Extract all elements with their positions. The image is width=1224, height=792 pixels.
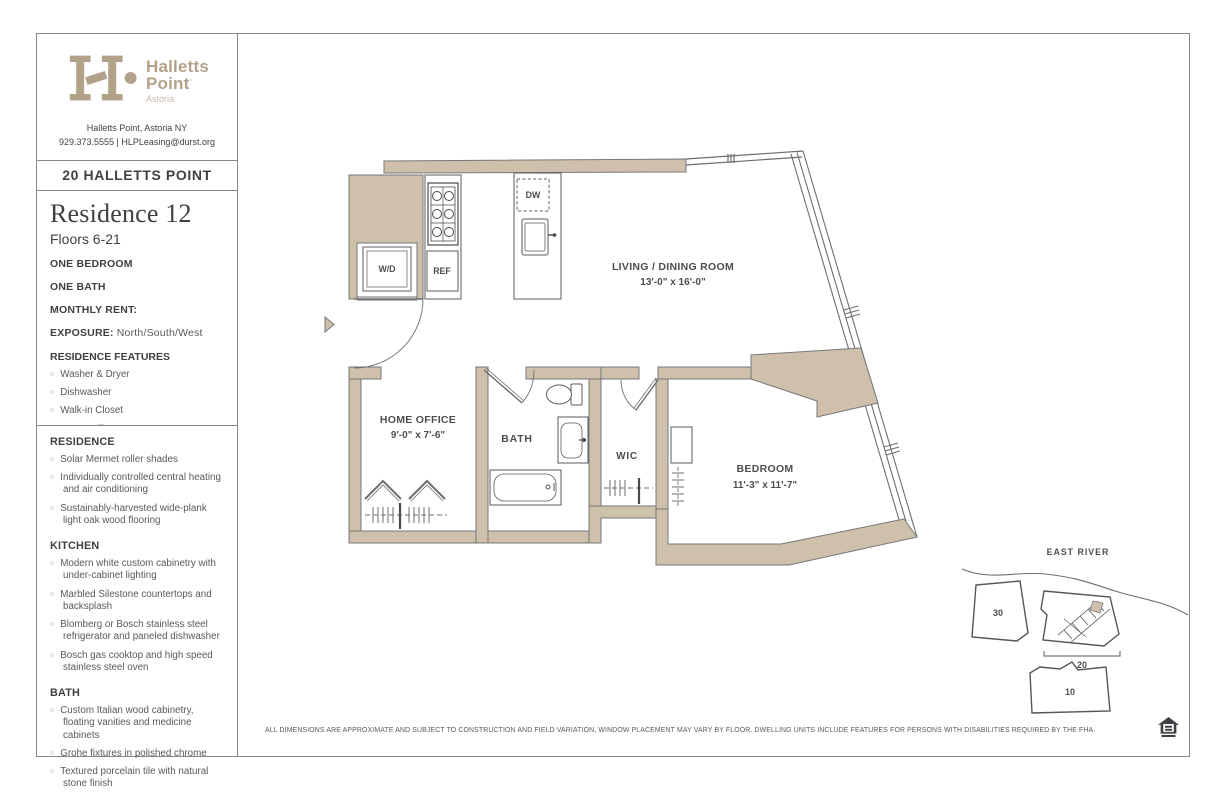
equal-housing-opportunity-icon: [1158, 717, 1179, 743]
toilet-icon: [547, 384, 583, 405]
amenities-bath-title: BATH: [50, 687, 224, 699]
residence-features-list: Washer & DryerDishwasherWalk-in ClosetHo…: [50, 369, 224, 426]
bedroom-top-wall: [658, 367, 756, 379]
brand-tagline: Astoria: [146, 95, 209, 104]
building-20-bracket: [1044, 651, 1120, 656]
label-bedroom-dims: 11'-3" x 11'-7": [733, 480, 798, 491]
amenity-item: Sustainably-harvested wide-plank light o…: [50, 503, 224, 527]
halletts-point-logo-icon: [65, 49, 137, 112]
spec-rent: MONTHLY RENT:: [50, 304, 224, 316]
top-wall: [384, 159, 686, 173]
label-living-dims: 13'-0" x 16'-0": [640, 277, 706, 288]
disclaimer-text: ALL DIMENSIONS ARE APPROXIMATE AND SUBJE…: [265, 727, 1144, 734]
building-30-label: 30: [993, 608, 1003, 618]
amenities-residence-list: Solar Mermet roller shadesIndividually c…: [50, 454, 224, 527]
spec-bedrooms: ONE BEDROOM: [50, 258, 224, 270]
spec-baths: ONE BATH: [50, 281, 224, 293]
bath-top-wall: [526, 367, 601, 379]
amenities-section: RESIDENCE Solar Mermet roller shadesIndi…: [37, 426, 237, 790]
building-20-shape: [1041, 591, 1119, 646]
east-river-label: EAST RIVER: [1047, 547, 1110, 557]
bottom-wall-west: [349, 531, 601, 543]
amenity-item: Grohe fixtures in polished chrome: [50, 748, 224, 760]
bath-left-wall: [476, 367, 488, 543]
label-home-office: HOME OFFICE: [380, 414, 456, 426]
amenity-item: Individually controlled central heating …: [50, 472, 224, 496]
amenity-item: Bosch gas cooktop and high speed stainle…: [50, 650, 224, 674]
residence-floors: Floors 6-21: [50, 231, 224, 247]
amenities-bath-list: Custom Italian wood cabinetry, floating …: [50, 705, 224, 790]
main-area: LIVING / DINING ROOM 13'-0" x 16'-0" HOM…: [238, 34, 1189, 756]
amenity-item: Modern white custom cabinetry with under…: [50, 558, 224, 582]
brand-address: Halletts Point, Astoria NY: [37, 122, 237, 136]
label-washer-dryer: W/D: [378, 264, 395, 274]
bath-right-wall: [589, 379, 601, 506]
label-bedroom: BEDROOM: [737, 463, 794, 475]
label-living-room: LIVING / DINING ROOM: [612, 261, 734, 273]
label-wic: WIC: [616, 451, 638, 462]
hall-wall-stub: [349, 367, 381, 379]
exposure-value: North/South/West: [114, 327, 203, 339]
building-title: 20 HALLETTS POINT: [37, 161, 237, 191]
floorplan: LIVING / DINING ROOM 13'-0" x 16'-0" HOM…: [321, 139, 921, 589]
left-wall-lower: [349, 367, 361, 531]
site-map: EAST RIVER: [960, 539, 1190, 724]
bathtub-icon: [490, 470, 561, 505]
footer: ALL DIMENSIONS ARE APPROXIMATE AND SUBJE…: [265, 717, 1179, 743]
amenities-kitchen-title: KITCHEN: [50, 540, 224, 552]
amenity-item: Custom Italian wood cabinetry, floating …: [50, 705, 224, 742]
amenity-item: Marbled Silestone countertops and backsp…: [50, 589, 224, 613]
amenities-kitchen-list: Modern white custom cabinetry with under…: [50, 558, 224, 674]
feature-item: Dishwasher: [50, 387, 224, 399]
feature-item: Washer & Dryer: [50, 369, 224, 381]
label-bath: BATH: [501, 433, 533, 445]
vanity-sink-icon: [558, 417, 588, 463]
flyer-page: Halletts Point· Astoria Halletts Point, …: [36, 33, 1190, 757]
amenity-item: Solar Mermet roller shades: [50, 454, 224, 466]
label-dishwasher: DW: [526, 190, 541, 200]
amenities-residence-title: RESIDENCE: [50, 436, 224, 448]
wic-bottom-wall: [589, 506, 659, 543]
residence-info-section: Residence 12 Floors 6-21 ONE BEDROOM ONE…: [37, 191, 237, 426]
wic-right-wall: [656, 379, 668, 509]
exposure-label: EXPOSURE:: [50, 327, 114, 339]
brand-trademark: ·: [189, 75, 192, 84]
residence-features-title: RESIDENCE FEATURES: [50, 351, 224, 363]
brand-contact: 929.373.5555 | HLPLeasing@durst.org: [37, 136, 237, 150]
amenity-item: Textured porcelain tile with natural sto…: [50, 766, 224, 790]
feature-item: Walk-in Closet: [50, 405, 224, 417]
wic-top-wall: [601, 367, 639, 379]
label-refrigerator: REF: [433, 266, 451, 276]
label-home-office-dims: 9'-0" x 7'-6": [391, 430, 446, 441]
building-10-label: 10: [1065, 687, 1075, 697]
building-20-label: 20: [1077, 660, 1087, 670]
brand-line2: Point: [146, 74, 190, 93]
spec-exposure: EXPOSURE: North/South/West: [50, 327, 224, 339]
logo-section: Halletts Point· Astoria Halletts Point, …: [37, 34, 237, 161]
entry-arrow-icon: [325, 317, 334, 332]
brand-name: Halletts Point· Astoria: [146, 58, 209, 104]
sidebar: Halletts Point· Astoria Halletts Point, …: [37, 34, 238, 756]
amenity-item: Blomberg or Bosch stainless steel refrig…: [50, 619, 224, 643]
residence-title: Residence 12: [50, 199, 224, 229]
